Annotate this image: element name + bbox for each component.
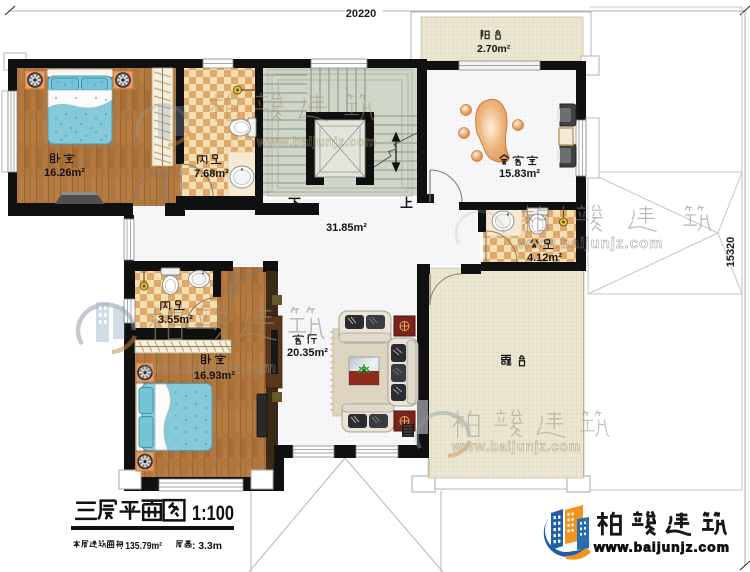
- svg-text:31.85m²: 31.85m²: [326, 222, 367, 234]
- svg-text:15.83m²: 15.83m²: [499, 168, 540, 180]
- svg-text:www.baijunjz.com: www.baijunjz.com: [593, 541, 730, 555]
- svg-text:: 135.79m²: : 135.79m²: [120, 540, 162, 552]
- svg-text:15320: 15320: [725, 237, 737, 268]
- svg-text:4.12m²: 4.12m²: [527, 252, 562, 264]
- svg-text:www.baijunjz.com: www.baijunjz.com: [451, 439, 581, 454]
- svg-text:2.70m²: 2.70m²: [477, 43, 511, 55]
- svg-text:: 3.3m: : 3.3m: [192, 540, 222, 552]
- svg-text:www.baijunjz.com: www.baijunjz.com: [256, 134, 377, 149]
- svg-text:1:100: 1:100: [192, 502, 234, 525]
- svg-text:16.93m²: 16.93m²: [194, 370, 235, 382]
- svg-text:16.26m²: 16.26m²: [44, 167, 85, 179]
- svg-text:www.baijunjz.com: www.baijunjz.com: [517, 235, 663, 252]
- svg-text:7.68m²: 7.68m²: [194, 168, 229, 180]
- svg-text:3.55m²: 3.55m²: [158, 314, 193, 326]
- svg-text:20.35m²: 20.35m²: [287, 347, 328, 359]
- svg-text:20220: 20220: [346, 8, 377, 20]
